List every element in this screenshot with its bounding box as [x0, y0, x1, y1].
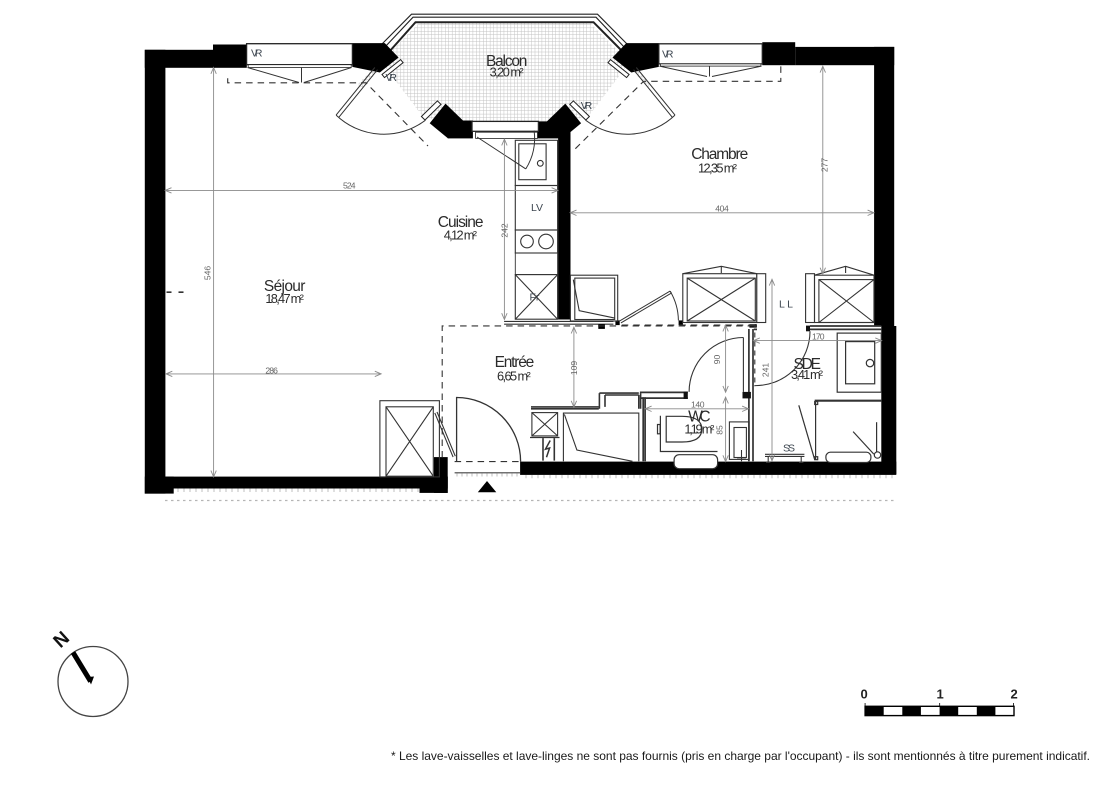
svg-text:404: 404: [715, 203, 729, 213]
svg-text:* Les lave-vaisselles et lave-: * Les lave-vaisselles et lave-linges ne …: [391, 749, 1090, 763]
svg-text:VR: VR: [386, 72, 398, 84]
svg-text:286: 286: [265, 366, 278, 376]
svg-text:6,65 m²: 6,65 m²: [497, 368, 532, 383]
svg-text:242: 242: [500, 223, 510, 238]
svg-text:VR: VR: [662, 49, 674, 61]
svg-text:18,47 m²: 18,47 m²: [265, 291, 304, 306]
svg-text:0: 0: [861, 687, 868, 702]
svg-text:109: 109: [569, 361, 579, 376]
svg-text:Fr: Fr: [530, 292, 540, 304]
svg-text:524: 524: [343, 181, 356, 191]
svg-text:241: 241: [761, 363, 771, 378]
svg-text:546: 546: [203, 266, 213, 281]
svg-text:1: 1: [937, 687, 944, 702]
svg-text:3,20 m²: 3,20 m²: [490, 65, 525, 80]
svg-text:277: 277: [820, 158, 830, 173]
svg-text:SS: SS: [783, 442, 795, 454]
svg-text:LV: LV: [531, 202, 543, 214]
svg-text:85: 85: [715, 425, 725, 435]
svg-text:4,12 m²: 4,12 m²: [444, 228, 478, 243]
svg-text:170: 170: [812, 332, 825, 342]
svg-text:12,35 m²: 12,35 m²: [698, 160, 738, 175]
svg-text:90: 90: [712, 355, 722, 365]
svg-text:1,19 m²: 1,19 m²: [684, 421, 715, 436]
svg-text:VR: VR: [581, 100, 593, 112]
svg-text:2: 2: [1011, 687, 1018, 702]
svg-text:3,41 m²: 3,41 m²: [791, 367, 824, 382]
svg-text:VR: VR: [251, 48, 263, 60]
